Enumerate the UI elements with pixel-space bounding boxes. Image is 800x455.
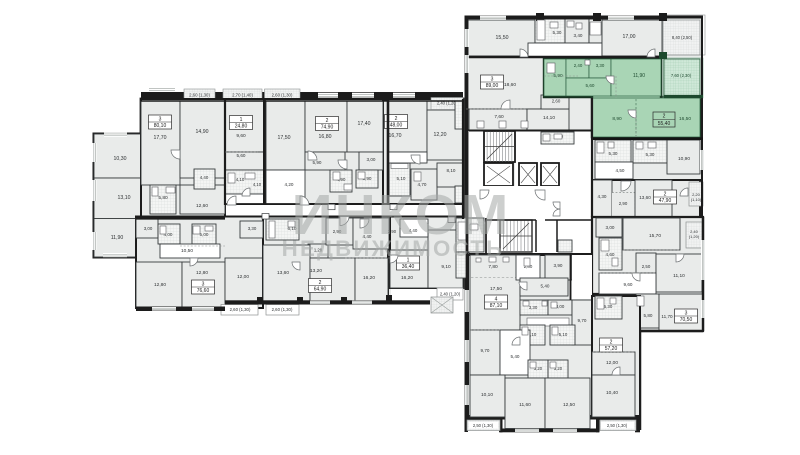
svg-text:1: 1 xyxy=(240,117,243,123)
svg-text:3,00: 3,00 xyxy=(367,157,376,162)
svg-text:16,20: 16,20 xyxy=(401,275,413,281)
svg-text:5,10: 5,10 xyxy=(397,176,406,181)
svg-text:4,10: 4,10 xyxy=(253,182,262,187)
svg-text:16,80: 16,80 xyxy=(319,134,332,140)
svg-text:4,40: 4,40 xyxy=(200,175,209,180)
svg-text:12,20: 12,20 xyxy=(434,132,447,138)
svg-text:5,30: 5,30 xyxy=(646,152,655,157)
svg-text:10,90: 10,90 xyxy=(678,156,690,162)
svg-text:17,40: 17,40 xyxy=(358,121,371,127)
svg-text:5,90: 5,90 xyxy=(553,73,563,79)
svg-text:17,50: 17,50 xyxy=(490,286,502,292)
svg-text:16,20: 16,20 xyxy=(363,275,375,281)
svg-text:9,60: 9,60 xyxy=(624,282,633,287)
svg-text:2,50 (1,30): 2,50 (1,30) xyxy=(473,423,494,428)
svg-text:87,10: 87,10 xyxy=(490,303,503,309)
svg-text:5,40: 5,40 xyxy=(511,354,520,359)
svg-text:9,60: 9,60 xyxy=(236,133,246,139)
svg-text:74,90: 74,90 xyxy=(321,124,334,130)
svg-text:12,00: 12,00 xyxy=(606,360,618,366)
svg-text:55,40: 55,40 xyxy=(658,121,671,127)
svg-text:18,60: 18,60 xyxy=(504,82,516,88)
svg-text:2,40 (1,20): 2,40 (1,20) xyxy=(440,292,461,297)
svg-text:16,50: 16,50 xyxy=(679,116,691,122)
svg-text:2,60: 2,60 xyxy=(552,99,561,104)
svg-text:89,00: 89,00 xyxy=(486,83,499,89)
svg-text:13,60: 13,60 xyxy=(277,270,289,276)
svg-text:4,30: 4,30 xyxy=(598,194,607,199)
svg-text:11,90: 11,90 xyxy=(633,73,645,79)
svg-text:3,40: 3,40 xyxy=(574,33,583,38)
svg-text:5,10: 5,10 xyxy=(559,332,568,337)
svg-text:76,60: 76,60 xyxy=(197,288,210,294)
svg-text:2: 2 xyxy=(395,116,398,122)
svg-text:5,00: 5,00 xyxy=(200,232,209,237)
svg-text:17,00: 17,00 xyxy=(623,34,636,40)
svg-text:3: 3 xyxy=(491,77,494,83)
svg-text:12,50: 12,50 xyxy=(563,402,575,408)
svg-text:5,80: 5,80 xyxy=(158,195,168,201)
svg-text:7,80: 7,80 xyxy=(488,264,498,270)
svg-text:7,60 (2,30): 7,60 (2,30) xyxy=(671,73,692,78)
svg-text:3,00: 3,00 xyxy=(144,226,153,231)
svg-text:3,30: 3,30 xyxy=(529,305,538,310)
svg-text:13,10: 13,10 xyxy=(118,195,131,201)
svg-text:12,80: 12,80 xyxy=(154,282,166,288)
svg-text:2,40: 2,40 xyxy=(574,63,583,68)
svg-text:7,60: 7,60 xyxy=(494,114,504,120)
svg-text:80,10: 80,10 xyxy=(154,123,167,129)
svg-text:4,60: 4,60 xyxy=(606,252,615,257)
svg-text:48,00: 48,00 xyxy=(390,122,403,128)
svg-text:2: 2 xyxy=(326,118,329,124)
svg-text:10,50: 10,50 xyxy=(181,248,193,254)
svg-text:70,50: 70,50 xyxy=(680,317,693,323)
svg-text:2,70 (1,40): 2,70 (1,40) xyxy=(232,93,253,98)
svg-text:47,90: 47,90 xyxy=(659,198,672,204)
svg-text:2,90: 2,90 xyxy=(619,201,628,206)
svg-text:5,60: 5,60 xyxy=(237,153,246,158)
svg-text:2,60 (1,30): 2,60 (1,30) xyxy=(272,307,293,312)
svg-text:2,60 (1,30): 2,60 (1,30) xyxy=(230,307,251,312)
svg-text:12,00: 12,00 xyxy=(237,274,249,280)
svg-text:36,40: 36,40 xyxy=(402,264,415,270)
svg-text:3,00: 3,00 xyxy=(606,225,615,230)
svg-text:3: 3 xyxy=(202,282,205,288)
svg-text:17,50: 17,50 xyxy=(278,135,291,141)
svg-text:5,30: 5,30 xyxy=(604,304,613,309)
svg-text:15,50: 15,50 xyxy=(496,35,509,41)
svg-text:10,30: 10,30 xyxy=(114,156,127,162)
svg-text:2,60 (1,30): 2,60 (1,30) xyxy=(272,93,293,98)
svg-text:4: 4 xyxy=(495,297,498,303)
svg-text:2: 2 xyxy=(610,340,613,346)
svg-text:2: 2 xyxy=(664,192,667,198)
svg-text:11,70: 11,70 xyxy=(661,314,673,319)
svg-text:5,30: 5,30 xyxy=(553,30,562,35)
svg-text:9,70: 9,70 xyxy=(578,318,587,323)
svg-text:11,10: 11,10 xyxy=(673,273,685,279)
svg-text:4,50: 4,50 xyxy=(616,168,625,173)
svg-text:14,90: 14,90 xyxy=(196,129,209,135)
svg-text:57,20: 57,20 xyxy=(605,346,618,352)
svg-text:3,90: 3,90 xyxy=(554,263,563,268)
svg-text:15,70: 15,70 xyxy=(649,233,661,239)
svg-text:2,50 (1,30): 2,50 (1,30) xyxy=(607,423,628,428)
svg-text:8,40 (2,50): 8,40 (2,50) xyxy=(672,35,693,40)
svg-text:(1,10): (1,10) xyxy=(691,197,702,202)
svg-text:10,40: 10,40 xyxy=(606,390,618,396)
svg-text:4,10: 4,10 xyxy=(236,177,245,182)
svg-text:24,80: 24,80 xyxy=(235,123,248,129)
svg-text:13,20: 13,20 xyxy=(310,268,322,274)
svg-text:9,70: 9,70 xyxy=(481,348,490,353)
svg-text:5,30: 5,30 xyxy=(609,151,618,156)
svg-text:2: 2 xyxy=(663,114,666,120)
svg-text:8,10: 8,10 xyxy=(447,168,456,173)
svg-text:11,90: 11,90 xyxy=(111,235,124,241)
svg-text:3,30: 3,30 xyxy=(596,63,605,68)
svg-text:3,30: 3,30 xyxy=(248,226,257,231)
svg-text:12,60: 12,60 xyxy=(196,203,208,209)
svg-text:5,60: 5,60 xyxy=(586,83,595,88)
svg-text:3: 3 xyxy=(685,311,688,317)
svg-text:12,80: 12,80 xyxy=(196,270,208,276)
svg-text:10,10: 10,10 xyxy=(481,392,493,398)
svg-text:3: 3 xyxy=(159,117,162,123)
svg-text:5,80: 5,80 xyxy=(644,313,653,318)
svg-text:14,10: 14,10 xyxy=(543,115,555,121)
svg-text:9,10: 9,10 xyxy=(441,264,451,270)
svg-text:5,90: 5,90 xyxy=(313,160,322,165)
svg-text:(1,20): (1,20) xyxy=(689,234,700,239)
svg-text:2,50: 2,50 xyxy=(642,264,651,269)
svg-text:2: 2 xyxy=(319,280,322,286)
svg-text:11,60: 11,60 xyxy=(519,402,531,408)
svg-text:64,90: 64,90 xyxy=(314,286,327,292)
svg-text:16,70: 16,70 xyxy=(389,133,402,139)
svg-text:2,60 (1,30): 2,60 (1,30) xyxy=(189,93,210,98)
svg-text:8,90: 8,90 xyxy=(612,116,622,122)
svg-text:13,60: 13,60 xyxy=(639,195,651,200)
svg-text:НЕДВИЖИМОСТЬ: НЕДВИЖИМОСТЬ xyxy=(282,236,505,261)
svg-text:17,70: 17,70 xyxy=(154,135,167,141)
svg-text:5,40: 5,40 xyxy=(541,284,550,289)
